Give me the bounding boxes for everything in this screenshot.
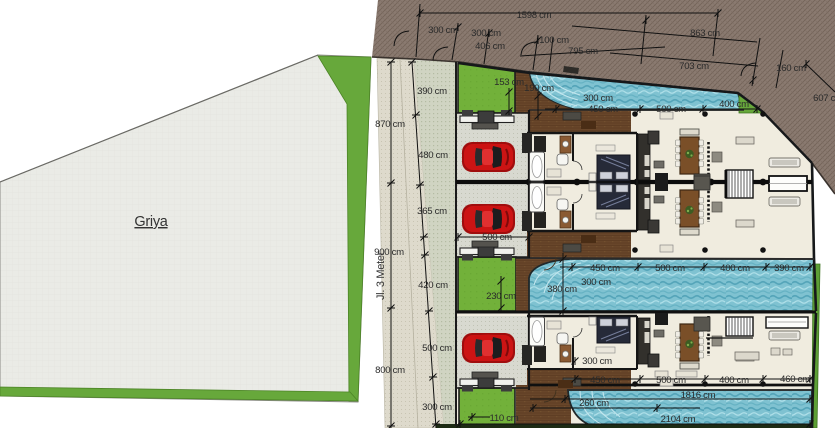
svg-text:607 cm: 607 cm <box>813 93 835 104</box>
svg-text:260 cm: 260 cm <box>579 398 609 409</box>
svg-text:870 cm: 870 cm <box>375 119 405 130</box>
svg-text:390 cm: 390 cm <box>774 263 804 274</box>
svg-text:500 cm: 500 cm <box>656 375 686 386</box>
svg-text:300 cm: 300 cm <box>471 28 501 39</box>
svg-text:300 cm: 300 cm <box>582 356 612 367</box>
svg-text:100 cm: 100 cm <box>539 35 569 46</box>
svg-text:1816 cm: 1816 cm <box>681 390 716 401</box>
svg-text:450 cm: 450 cm <box>588 104 618 115</box>
svg-text:Jl. 3 Meter: Jl. 3 Meter <box>375 251 387 300</box>
svg-text:300 cm: 300 cm <box>581 277 611 288</box>
svg-text:380 cm: 380 cm <box>547 284 577 295</box>
svg-text:190 cm: 190 cm <box>524 83 554 94</box>
svg-text:1598 cm: 1598 cm <box>517 10 552 21</box>
svg-text:863 cm: 863 cm <box>690 28 720 39</box>
svg-text:Griya: Griya <box>134 214 168 230</box>
svg-text:300 cm: 300 cm <box>583 93 613 104</box>
svg-text:400 cm: 400 cm <box>720 263 750 274</box>
svg-text:365 cm: 365 cm <box>417 206 447 217</box>
svg-text:390 cm: 390 cm <box>417 86 447 97</box>
svg-text:460 cm: 460 cm <box>780 374 810 385</box>
svg-text:400 cm: 400 cm <box>719 99 749 110</box>
svg-text:2104 cm: 2104 cm <box>661 414 696 425</box>
svg-text:500 cm: 500 cm <box>656 104 686 115</box>
svg-text:406 cm: 406 cm <box>475 41 505 52</box>
svg-text:800 cm: 800 cm <box>375 365 405 376</box>
svg-text:110 cm: 110 cm <box>490 413 519 424</box>
svg-text:450 cm: 450 cm <box>590 263 620 274</box>
svg-text:795 cm: 795 cm <box>568 46 598 57</box>
svg-text:153 cm: 153 cm <box>494 77 524 88</box>
svg-text:300 cm: 300 cm <box>428 25 458 36</box>
svg-text:480 cm: 480 cm <box>418 150 448 161</box>
svg-text:160 cm: 160 cm <box>776 63 806 74</box>
svg-text:703 cm: 703 cm <box>679 61 709 72</box>
svg-text:500 cm: 500 cm <box>655 263 685 274</box>
svg-text:400 cm: 400 cm <box>719 375 749 386</box>
svg-text:500 cm: 500 cm <box>422 343 452 354</box>
svg-text:500 cm: 500 cm <box>482 232 512 243</box>
svg-text:420 cm: 420 cm <box>418 280 448 291</box>
svg-text:450 cm: 450 cm <box>590 375 620 386</box>
svg-text:300 cm: 300 cm <box>422 402 452 413</box>
